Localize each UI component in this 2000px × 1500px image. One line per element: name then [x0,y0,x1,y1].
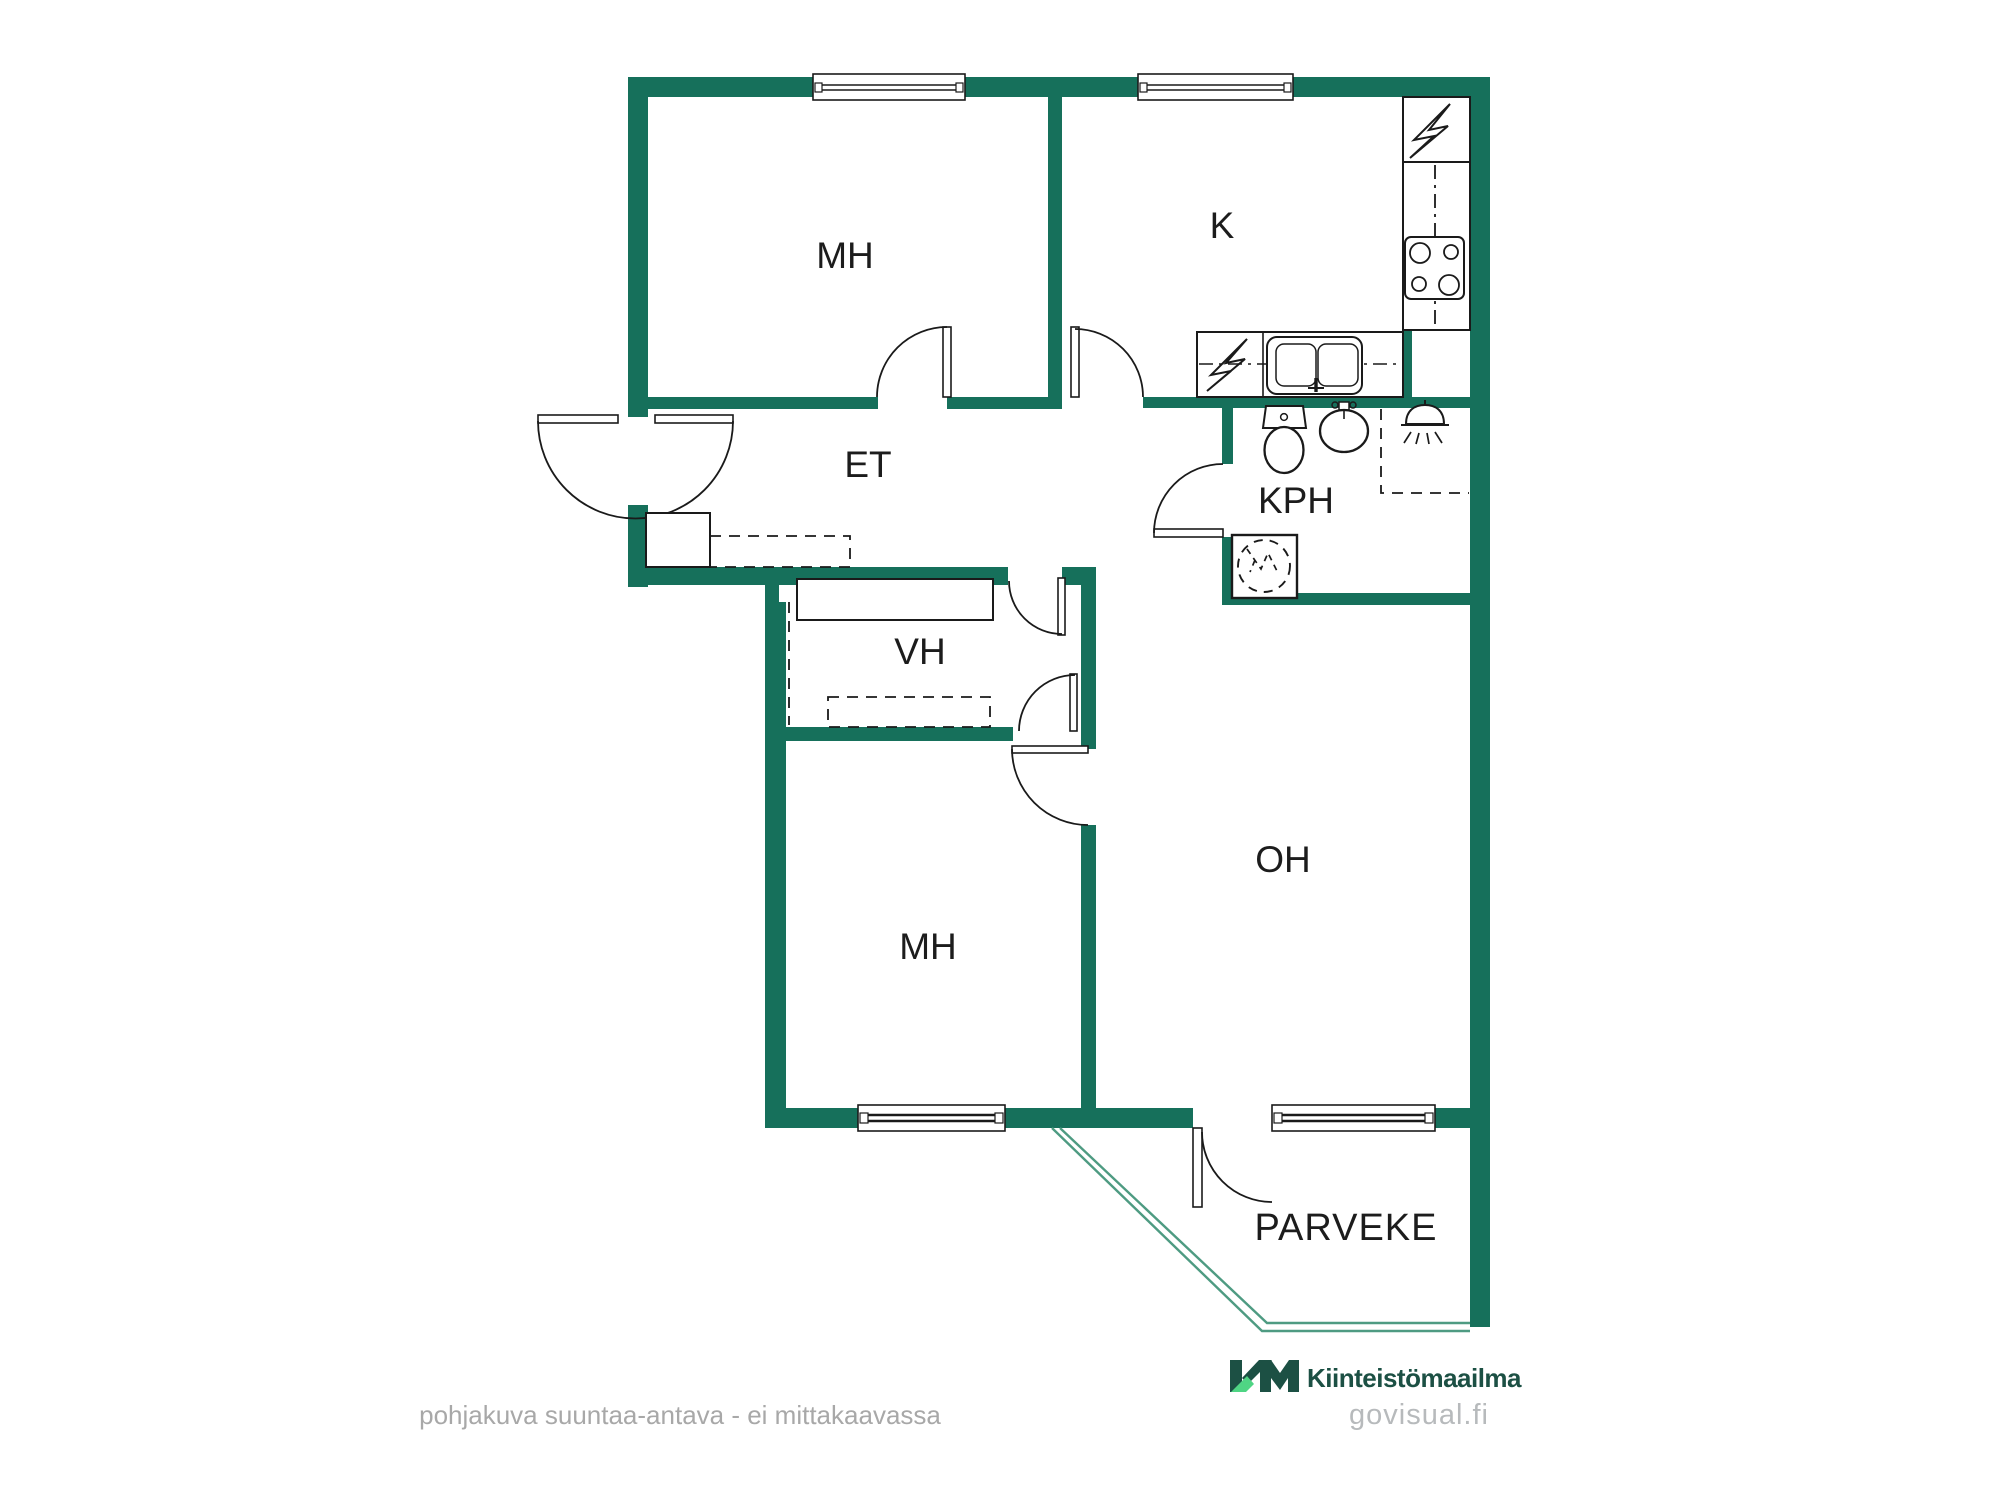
door-mh2 [1012,746,1088,825]
door-kph [1154,464,1223,537]
window-mh1 [813,74,965,100]
floor-plan-page: MH K ET KPH VH MH OH PARVEKE Kiinteistöm… [0,0,2000,1500]
room-label-k: K [1210,205,1235,246]
kitchen-sink-icon [1267,337,1362,394]
window-oh-balcony [1272,1105,1435,1131]
company-name: Kiinteistömaailma [1307,1363,1522,1393]
room-label-mh1: MH [816,235,874,276]
km-logo-icon [1230,1360,1299,1392]
washbasin-icon [1320,402,1368,452]
shower-icon [1381,400,1469,493]
room-label-vh: VH [894,631,945,672]
door-k [1071,327,1143,397]
door-vh-lower [1019,674,1077,731]
room-label-kph: KPH [1258,480,1334,521]
entrance-door [538,415,733,519]
floor-plan-svg: MH K ET KPH VH MH OH PARVEKE Kiinteistöm… [0,0,2000,1500]
washing-machine-icon [1232,535,1297,598]
closet-et [646,513,710,567]
room-label-mh2: MH [899,926,957,967]
door-mh1 [877,327,951,397]
door-vh-upper [1009,578,1065,635]
shelf-vh [797,579,993,620]
room-label-parveke: PARVEKE [1254,1207,1437,1249]
door-balcony [1193,1128,1272,1207]
window-k [1138,74,1293,100]
website-text: govisual.fi [1349,1399,1489,1431]
stove-icon [1405,237,1464,299]
wall-openings [779,585,1272,1129]
company-logo: Kiinteistömaailma govisual.fi [1230,1360,1522,1431]
room-label-et: ET [844,444,891,485]
disclaimer-text: pohjakuva suuntaa-antava - ei mittakaava… [419,1400,941,1430]
cabinet-et-dashed [710,536,850,567]
room-label-oh: OH [1255,839,1311,880]
walls [628,77,1490,1327]
window-mh2 [858,1105,1005,1131]
toilet-icon [1263,406,1306,473]
